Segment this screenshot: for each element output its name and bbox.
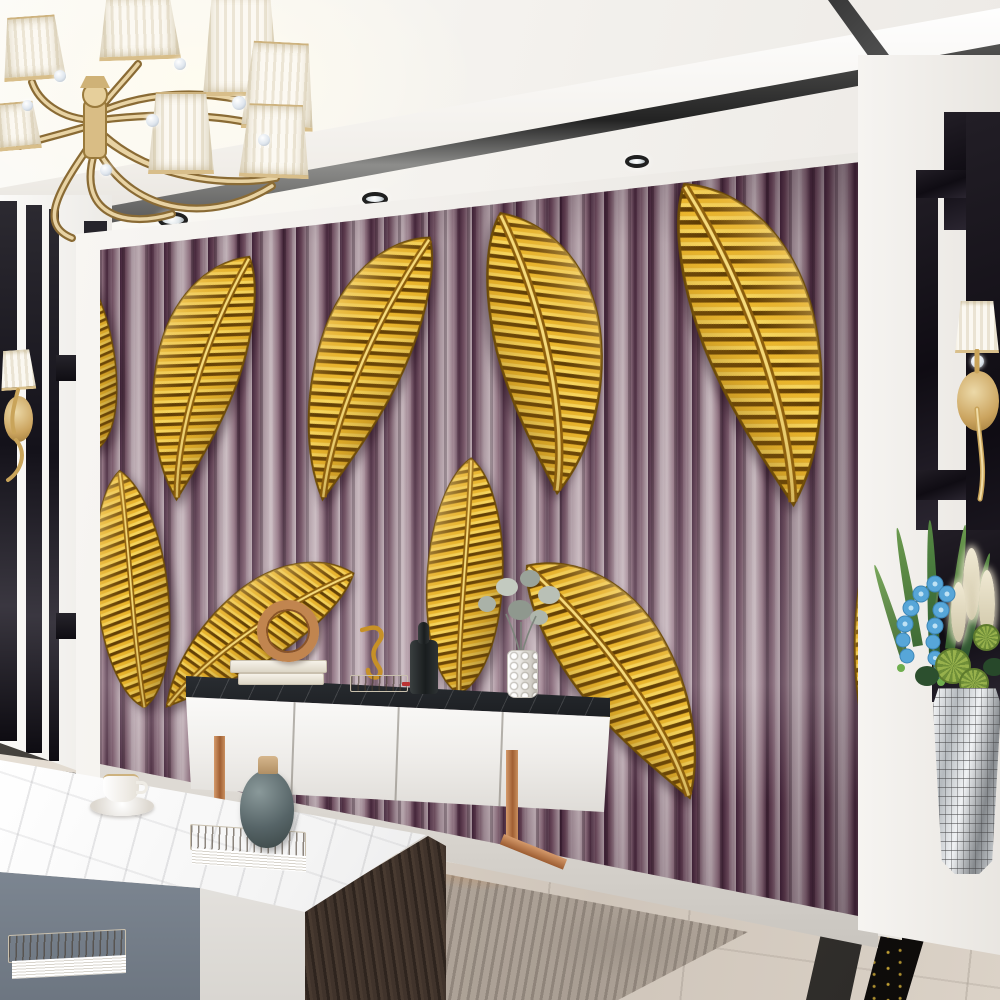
hobnail-vase (507, 650, 538, 698)
seahorse-figurine (360, 624, 388, 680)
red-bookmark (402, 682, 410, 686)
sconce-arm (950, 349, 1000, 513)
dark-vase (410, 640, 438, 694)
left-sconce (0, 348, 46, 488)
dried-flowers (468, 566, 568, 658)
small-books (350, 675, 408, 692)
living-room-scene (0, 0, 1000, 1000)
lamp-shade (148, 92, 214, 174)
stacked-books (238, 673, 324, 685)
crystal-ball (174, 58, 186, 70)
right-sconce (950, 293, 1000, 513)
gold-feather (630, 155, 879, 527)
sconce-shade (955, 301, 999, 353)
cactus-ball (973, 624, 1000, 651)
crystal-ball (258, 134, 270, 146)
console-foot (500, 834, 567, 870)
coffee-table (0, 750, 470, 1000)
door-seam (498, 712, 503, 812)
crystal-ball (22, 100, 33, 111)
sconce-shade (0, 349, 36, 391)
vase-stopper (258, 756, 278, 774)
dark-vase-neck (418, 622, 429, 644)
lamp-shade (239, 103, 312, 179)
black-marble-stripe (49, 209, 59, 761)
coffee-cup (103, 774, 139, 802)
sconce-arm (0, 388, 46, 488)
crystal-ball (54, 70, 66, 82)
floor-plant (855, 520, 1000, 890)
right-meander-arm (916, 170, 966, 198)
lamp-shade (97, 0, 181, 61)
crystal-ball (146, 114, 159, 127)
crystal-ball (100, 164, 112, 176)
teal-vase (240, 770, 294, 848)
chandelier (0, 0, 360, 250)
crystal-ball (232, 96, 246, 110)
console-leg (506, 750, 518, 842)
stacked-books (230, 660, 327, 673)
ring-sculpture (253, 596, 323, 666)
mosaic-floor-vase (933, 688, 1000, 874)
